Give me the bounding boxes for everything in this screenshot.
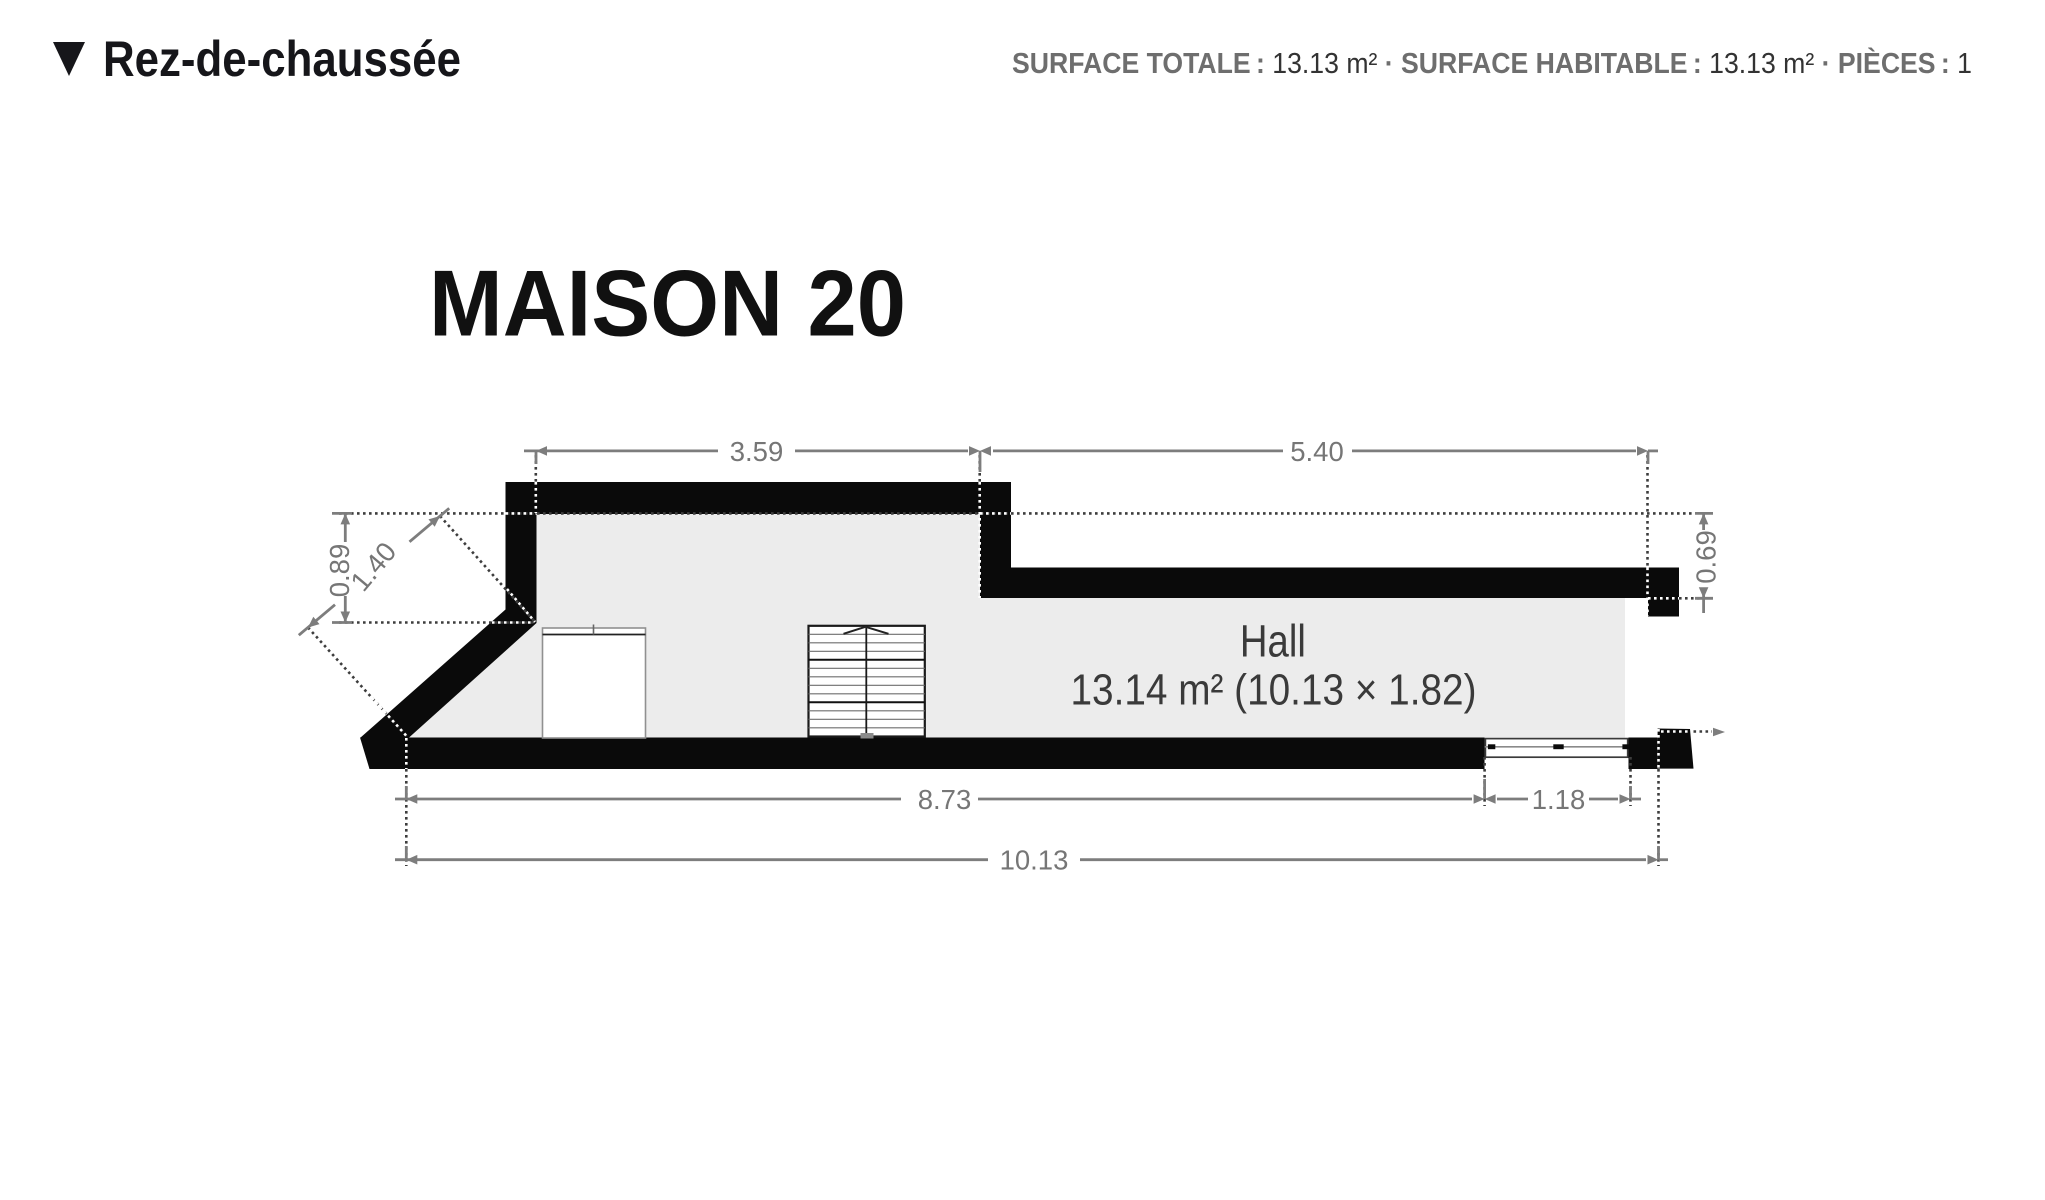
svg-text:8.73: 8.73 <box>918 784 972 815</box>
svg-text:5.40: 5.40 <box>1290 436 1344 467</box>
svg-text:0.69: 0.69 <box>1690 530 1721 584</box>
svg-text:1.18: 1.18 <box>1532 784 1586 815</box>
svg-text:SURFACE TOTALE : 13.13 m² · SU: SURFACE TOTALE : 13.13 m² · SURFACE HABI… <box>1012 48 1972 80</box>
svg-text:13.14 m² (10.13 × 1.82): 13.14 m² (10.13 × 1.82) <box>1071 666 1477 715</box>
svg-text:3.59: 3.59 <box>730 436 784 467</box>
svg-text:MAISON 20: MAISON 20 <box>429 251 906 356</box>
svg-text:10.13: 10.13 <box>1000 845 1069 876</box>
svg-text:Hall: Hall <box>1240 616 1306 667</box>
svg-text:Rez-de-chaussée: Rez-de-chaussée <box>103 31 461 87</box>
